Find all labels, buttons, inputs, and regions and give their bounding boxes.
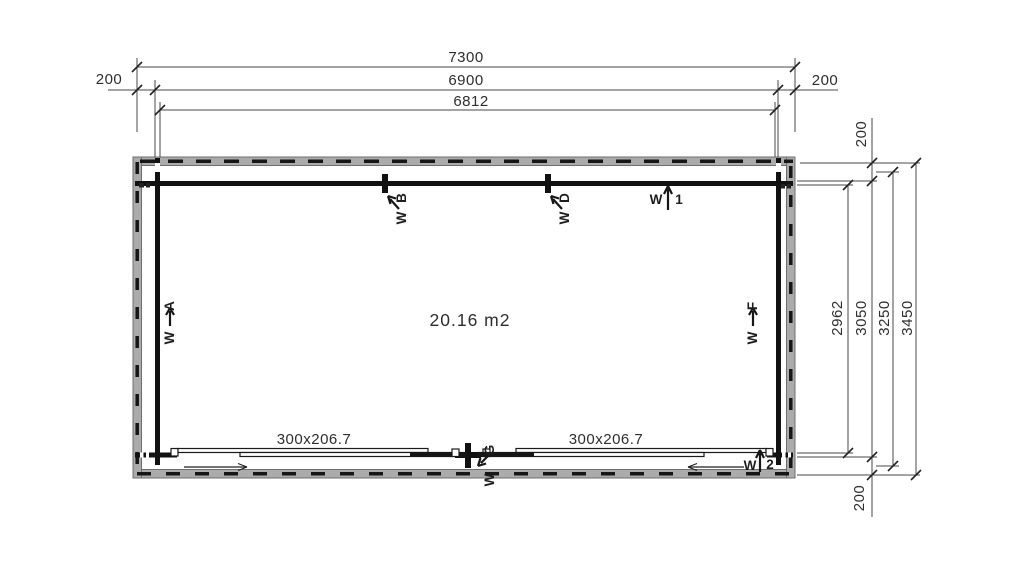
window-label-wf: W F (745, 302, 760, 345)
label-wb-prefix: W (394, 211, 409, 224)
dim-2962-label: 2962 (829, 300, 846, 335)
dim-top-200-label: 200 (853, 121, 870, 148)
dim-6900-label: 6900 (448, 72, 483, 89)
label-wa-prefix: W (162, 331, 177, 344)
label-wa-id: A (162, 301, 177, 311)
dim-6812-label: 6812 (453, 93, 488, 110)
label-wg-id: G (482, 445, 497, 456)
floorplan-page: 300x206.7 300x206.7 20.16 m2 7300 6900 6… (0, 0, 1024, 576)
dim-7300-label: 7300 (448, 49, 483, 66)
door-right-size-label: 300x206.7 (569, 431, 644, 448)
label-w2-prefix: W (744, 458, 757, 473)
joint-mark-topleft-1 (139, 183, 144, 188)
up-arrow-icon (664, 186, 672, 210)
window-label-wg: W G (478, 445, 497, 487)
top-dimensions: 7300 6900 6812 200 200 (96, 49, 839, 157)
dim-3250-label: 3250 (876, 300, 893, 335)
dim-left-200-label: 200 (96, 71, 123, 88)
joint-gap-bottomright (782, 453, 786, 458)
joint-mark-topright-2 (787, 184, 791, 189)
corner-notch-left (155, 163, 160, 172)
floorplan-svg: 300x206.7 300x206.7 20.16 m2 7300 6900 6… (0, 0, 1024, 576)
label-wd-id: D (557, 193, 572, 203)
sliding-door-right (478, 449, 773, 471)
label-wg-prefix: W (482, 473, 497, 486)
joint-gap-bottomleft (140, 453, 144, 458)
corner-notch-right (776, 163, 781, 172)
joint-gap-bottomright-2 (788, 453, 791, 458)
label-wb-id: B (394, 193, 409, 203)
joint-mark-topleft-2 (146, 183, 150, 188)
label-wf-prefix: W (745, 331, 760, 344)
label-w1-id: 1 (675, 192, 683, 207)
room-area-label: 20.16 m2 (430, 310, 511, 330)
dim-right-200-label: 200 (812, 72, 839, 89)
door-panel-left-outer (178, 449, 428, 453)
door-panel-right-outer (516, 449, 766, 453)
window-label-wd: W D (551, 193, 572, 225)
label-wf-id: F (745, 302, 760, 310)
door-jamb-left (171, 449, 178, 457)
dim-3450-label: 3450 (899, 300, 916, 335)
dim-bottom-200-label: 200 (851, 485, 868, 512)
sliding-door-left (171, 449, 466, 471)
up-arrow-icon (756, 450, 764, 472)
joint-mark-topright-1 (781, 184, 785, 189)
door-jamb-center-left (452, 449, 459, 457)
label-wd-prefix: W (557, 211, 572, 224)
window-label-w1: W 1 (650, 186, 684, 210)
label-w1-prefix: W (650, 192, 663, 207)
label-w2-id: 2 (766, 457, 774, 472)
dim-3050-label: 3050 (853, 300, 870, 335)
door-left-size-label: 300x206.7 (277, 431, 352, 448)
window-label-wb: W B (388, 193, 409, 225)
right-dimensions: 2962 3050 3250 3450 200 200 (797, 118, 921, 517)
joint-gap-bottomleft-2 (146, 453, 149, 458)
window-label-wa: W A (162, 301, 177, 345)
door-jamb-right (766, 449, 773, 457)
